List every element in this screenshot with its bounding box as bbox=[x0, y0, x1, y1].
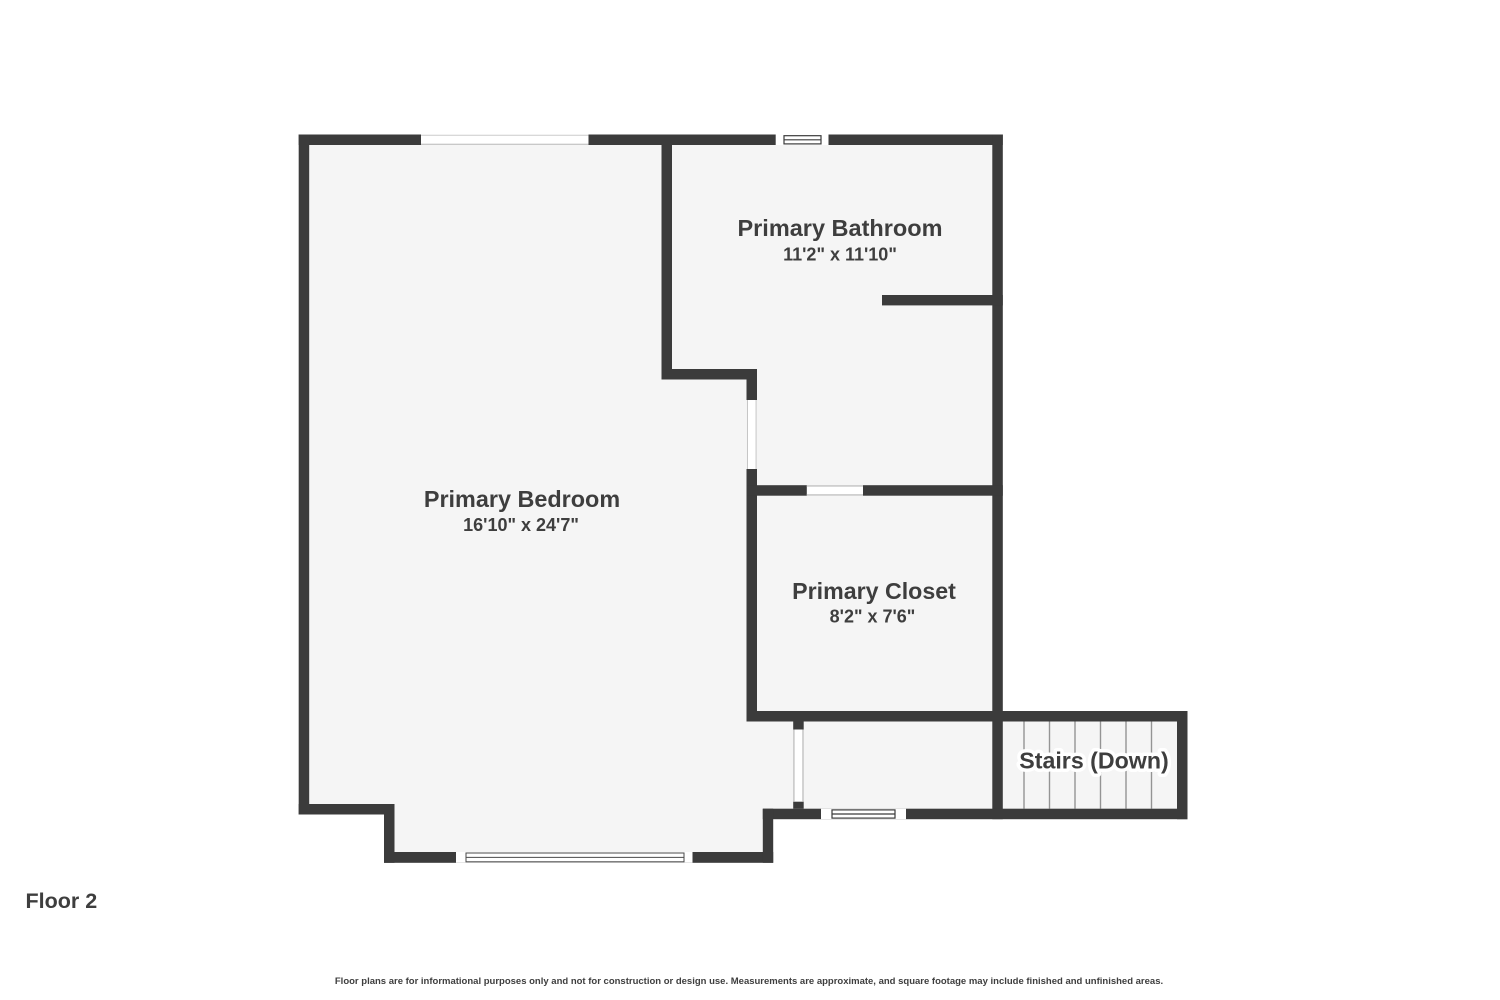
svg-text:Primary Closet: Primary Closet bbox=[792, 578, 956, 604]
svg-text:Primary Bedroom: Primary Bedroom bbox=[424, 486, 620, 512]
svg-text:Primary Bathroom: Primary Bathroom bbox=[737, 215, 942, 241]
svg-text:11'2" x 11'10": 11'2" x 11'10" bbox=[783, 245, 897, 265]
svg-text:Floor plans are for informatio: Floor plans are for informational purpos… bbox=[335, 976, 1163, 987]
svg-text:16'10" x 24'7": 16'10" x 24'7" bbox=[463, 515, 579, 535]
svg-text:Floor 2: Floor 2 bbox=[26, 889, 98, 913]
svg-text:Stairs (Down): Stairs (Down) bbox=[1019, 748, 1168, 774]
svg-text:8'2" x 7'6": 8'2" x 7'6" bbox=[830, 607, 916, 627]
